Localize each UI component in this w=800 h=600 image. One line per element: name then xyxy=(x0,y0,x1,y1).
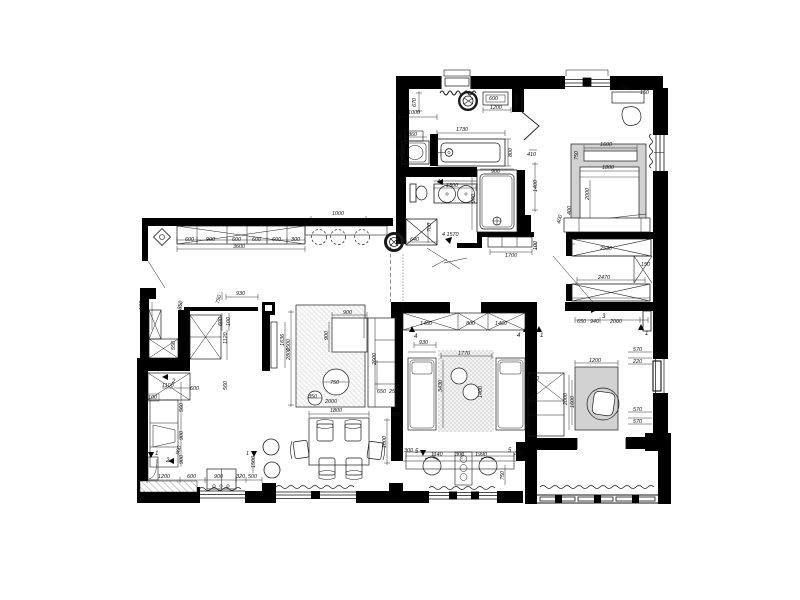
svg-text:1400: 1400 xyxy=(533,180,539,192)
svg-text:1500: 1500 xyxy=(286,339,292,351)
svg-text:400: 400 xyxy=(567,206,573,215)
svg-text:570: 570 xyxy=(633,419,642,425)
svg-text:3600: 3600 xyxy=(233,244,245,250)
svg-text:2000: 2000 xyxy=(585,188,591,201)
svg-text:570: 570 xyxy=(633,347,642,353)
svg-text:600: 600 xyxy=(218,317,224,326)
svg-text:800: 800 xyxy=(466,321,475,327)
svg-text:1000: 1000 xyxy=(382,436,388,448)
svg-text:900: 900 xyxy=(471,194,477,203)
svg-text:2000: 2000 xyxy=(324,399,337,405)
svg-text:1000: 1000 xyxy=(408,110,420,116)
svg-text:360: 360 xyxy=(408,132,417,138)
svg-text:600: 600 xyxy=(489,96,498,102)
svg-text:2600: 2600 xyxy=(372,353,378,366)
svg-text:150: 150 xyxy=(641,262,650,268)
svg-text:650: 650 xyxy=(377,389,386,395)
svg-text:300: 300 xyxy=(455,452,464,458)
svg-text:900: 900 xyxy=(214,474,223,480)
svg-text:2470: 2470 xyxy=(597,275,610,281)
svg-text:900: 900 xyxy=(491,169,500,175)
svg-text:250: 250 xyxy=(388,389,398,395)
svg-text:100: 100 xyxy=(226,317,232,326)
svg-text:1: 1 xyxy=(246,451,249,457)
svg-text:1200: 1200 xyxy=(490,105,502,111)
svg-text:600: 600 xyxy=(272,237,281,243)
svg-text:320: 320 xyxy=(236,474,245,480)
svg-text:780: 780 xyxy=(530,376,539,382)
svg-text:550: 550 xyxy=(566,288,572,297)
svg-text:930: 930 xyxy=(236,291,245,297)
svg-text:940: 940 xyxy=(590,319,599,325)
svg-text:1990: 1990 xyxy=(475,452,487,458)
svg-text:100: 100 xyxy=(148,395,157,401)
svg-text:550: 550 xyxy=(566,243,572,252)
svg-text:220: 220 xyxy=(632,359,642,365)
svg-text:750: 750 xyxy=(330,380,339,386)
svg-text:640: 640 xyxy=(410,237,419,243)
svg-text:300: 300 xyxy=(291,237,300,243)
svg-text:2530: 2530 xyxy=(599,246,612,252)
svg-text:900: 900 xyxy=(179,455,185,464)
svg-text:2: 2 xyxy=(171,379,176,385)
svg-text:1500: 1500 xyxy=(251,456,257,468)
svg-text:600: 600 xyxy=(187,474,196,480)
svg-text:600: 600 xyxy=(252,237,261,243)
svg-text:750: 750 xyxy=(500,471,506,480)
svg-text:2000: 2000 xyxy=(609,319,622,325)
svg-text:560: 560 xyxy=(179,403,185,412)
svg-text:4 1570: 4 1570 xyxy=(442,232,459,238)
svg-text:450: 450 xyxy=(515,95,521,104)
svg-text:570: 570 xyxy=(633,407,642,413)
svg-text:600: 600 xyxy=(232,237,241,243)
svg-text:1000: 1000 xyxy=(618,86,630,92)
svg-text:900: 900 xyxy=(324,331,330,340)
svg-text:1600: 1600 xyxy=(570,396,576,408)
svg-text:2000: 2000 xyxy=(563,393,569,406)
svg-text:900: 900 xyxy=(179,431,185,440)
svg-text:900: 900 xyxy=(343,310,352,316)
svg-text:1200: 1200 xyxy=(589,358,601,364)
svg-text:150: 150 xyxy=(640,90,649,96)
svg-text:250: 250 xyxy=(390,412,400,418)
svg-text:300: 300 xyxy=(514,451,523,457)
svg-text:500: 500 xyxy=(248,474,257,480)
svg-text:550: 550 xyxy=(171,341,177,350)
svg-text:1770: 1770 xyxy=(458,351,470,357)
svg-text:930: 930 xyxy=(419,340,428,346)
svg-text:600: 600 xyxy=(185,237,194,243)
svg-text:1460: 1460 xyxy=(420,321,432,327)
svg-text:1800: 1800 xyxy=(330,408,342,414)
svg-text:1700: 1700 xyxy=(505,253,517,259)
svg-text:100: 100 xyxy=(533,241,539,250)
svg-text:800: 800 xyxy=(508,148,514,157)
svg-text:1120: 1120 xyxy=(223,332,229,344)
svg-text:120: 120 xyxy=(139,301,145,310)
svg-text:1460: 1460 xyxy=(495,321,507,327)
svg-text:900: 900 xyxy=(206,237,215,243)
svg-text:1000: 1000 xyxy=(332,211,344,217)
svg-text:600: 600 xyxy=(190,386,199,392)
svg-text:1600: 1600 xyxy=(600,142,612,148)
svg-text:1: 1 xyxy=(540,333,543,339)
svg-text:1140: 1140 xyxy=(431,452,443,458)
svg-text:1730: 1730 xyxy=(456,127,468,133)
svg-text:410: 410 xyxy=(527,152,536,158)
svg-text:1200: 1200 xyxy=(158,474,170,480)
svg-text:1300: 1300 xyxy=(446,183,458,189)
svg-text:650: 650 xyxy=(577,319,586,325)
svg-text:750: 750 xyxy=(574,151,580,160)
svg-text:700: 700 xyxy=(427,223,433,232)
svg-text:150: 150 xyxy=(397,148,403,157)
svg-text:3430: 3430 xyxy=(438,380,444,392)
svg-text:1800: 1800 xyxy=(602,165,614,171)
svg-text:300: 300 xyxy=(404,448,413,454)
svg-text:1: 1 xyxy=(155,451,158,457)
svg-text:1: 1 xyxy=(645,331,648,337)
svg-text:350: 350 xyxy=(308,394,317,400)
svg-text:1400: 1400 xyxy=(478,386,484,398)
svg-text:670: 670 xyxy=(412,98,418,107)
svg-text:560: 560 xyxy=(223,381,229,390)
